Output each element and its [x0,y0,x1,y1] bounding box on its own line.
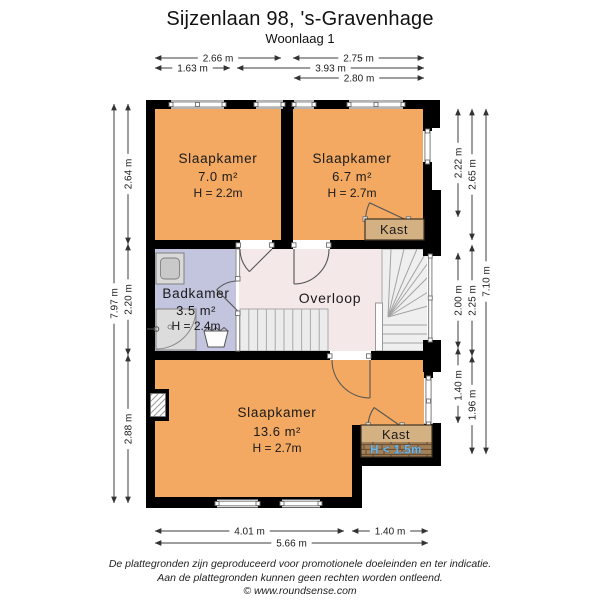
closet-bottom: Kast H < 1.5m [361,425,432,457]
window [347,100,405,108]
svg-text:2.00 m: 2.00 m [453,285,464,316]
label-badkamer-area: 3.5 m² [176,303,216,318]
dimension: 2.20 m [123,244,135,355]
dimension: 1.40 m [352,526,428,538]
dimension: 2.88 m [123,355,135,503]
dimension: 2.65 m [467,109,479,240]
window [292,100,316,108]
chimney-hatch [151,394,166,417]
label-slaapkamer-tr-area: 6.7 m² [332,169,372,184]
closet-bottom-height-note: H < 1.5m [370,445,422,457]
dimension: 5.66 m [155,538,428,550]
dimension: 7.97 m [109,104,121,503]
disclaimer-line-2: Aan de plattegronden kunnen geen rechten… [0,572,600,584]
dimension: 7.10 m [481,109,493,454]
dimension: 2.80 m [294,73,424,85]
label-slaapkamer-b-height: H = 2.7m [252,441,301,455]
dimension: 4.01 m [155,526,344,538]
dimension: 3.93 m [237,63,424,75]
label-badkamer-name: Badkamer [162,286,229,301]
svg-text:5.66 m: 5.66 m [276,538,307,549]
dimension: 2.22 m [453,109,465,217]
staircase-straight [240,309,328,351]
dimension: 1.40 m [453,348,465,423]
copyright-line: © www.roundsense.com [0,585,600,597]
label-slaapkamer-b-area: 13.6 m² [253,424,301,439]
stair-railing [376,303,383,351]
window [254,100,285,108]
dimension: 2.64 m [123,104,135,244]
closet-top-label: Kast [380,222,408,237]
dimension: 1.96 m [467,356,479,454]
svg-text:7.10 m: 7.10 m [481,266,492,297]
label-badkamer-height: H = 2.4m [171,319,220,333]
label-slaapkamer-tl-name: Slaapkamer [178,151,257,166]
label-overloop: Overloop [299,290,361,306]
label-slaapkamer-tr-height: H = 2.7m [327,186,376,200]
window [423,129,431,164]
window [424,376,432,426]
label-slaapkamer-b-name: Slaapkamer [237,405,316,420]
closet-bottom-label: Kast [382,427,410,442]
staircase-winder [376,249,429,351]
svg-text:2.64 m: 2.64 m [123,159,134,190]
label-slaapkamer-tr-name: Slaapkamer [312,151,391,166]
label-slaapkamer-tl-area: 7.0 m² [198,169,238,184]
window [215,500,260,508]
svg-text:1.40 m: 1.40 m [453,370,464,401]
svg-text:7.97 m: 7.97 m [109,288,120,319]
floor-plan: Kast Kast H < 1.5m Slaapkamer 7.0 m² H =… [0,0,600,600]
svg-text:1.63 m: 1.63 m [177,63,208,74]
svg-text:2.80 m: 2.80 m [344,73,375,84]
svg-text:1.40 m: 1.40 m [375,526,406,537]
dimension: 2.00 m [453,253,465,348]
svg-text:2.88 m: 2.88 m [123,414,134,445]
svg-text:1.96 m: 1.96 m [467,390,478,421]
dimension: 2.25 m [467,245,479,356]
svg-text:4.01 m: 4.01 m [234,526,265,537]
svg-text:2.65 m: 2.65 m [467,159,478,190]
window [169,100,226,108]
svg-text:2.20 m: 2.20 m [123,284,134,315]
closet-top: Kast [365,219,424,240]
window [280,500,322,508]
label-slaapkamer-tl-height: H = 2.2m [193,186,242,200]
svg-text:2.25 m: 2.25 m [467,285,478,316]
disclaimer-line-1: De plattegronden zijn geproduceerd voor … [0,558,600,570]
window [427,254,434,342]
svg-text:2.22 m: 2.22 m [453,148,464,179]
